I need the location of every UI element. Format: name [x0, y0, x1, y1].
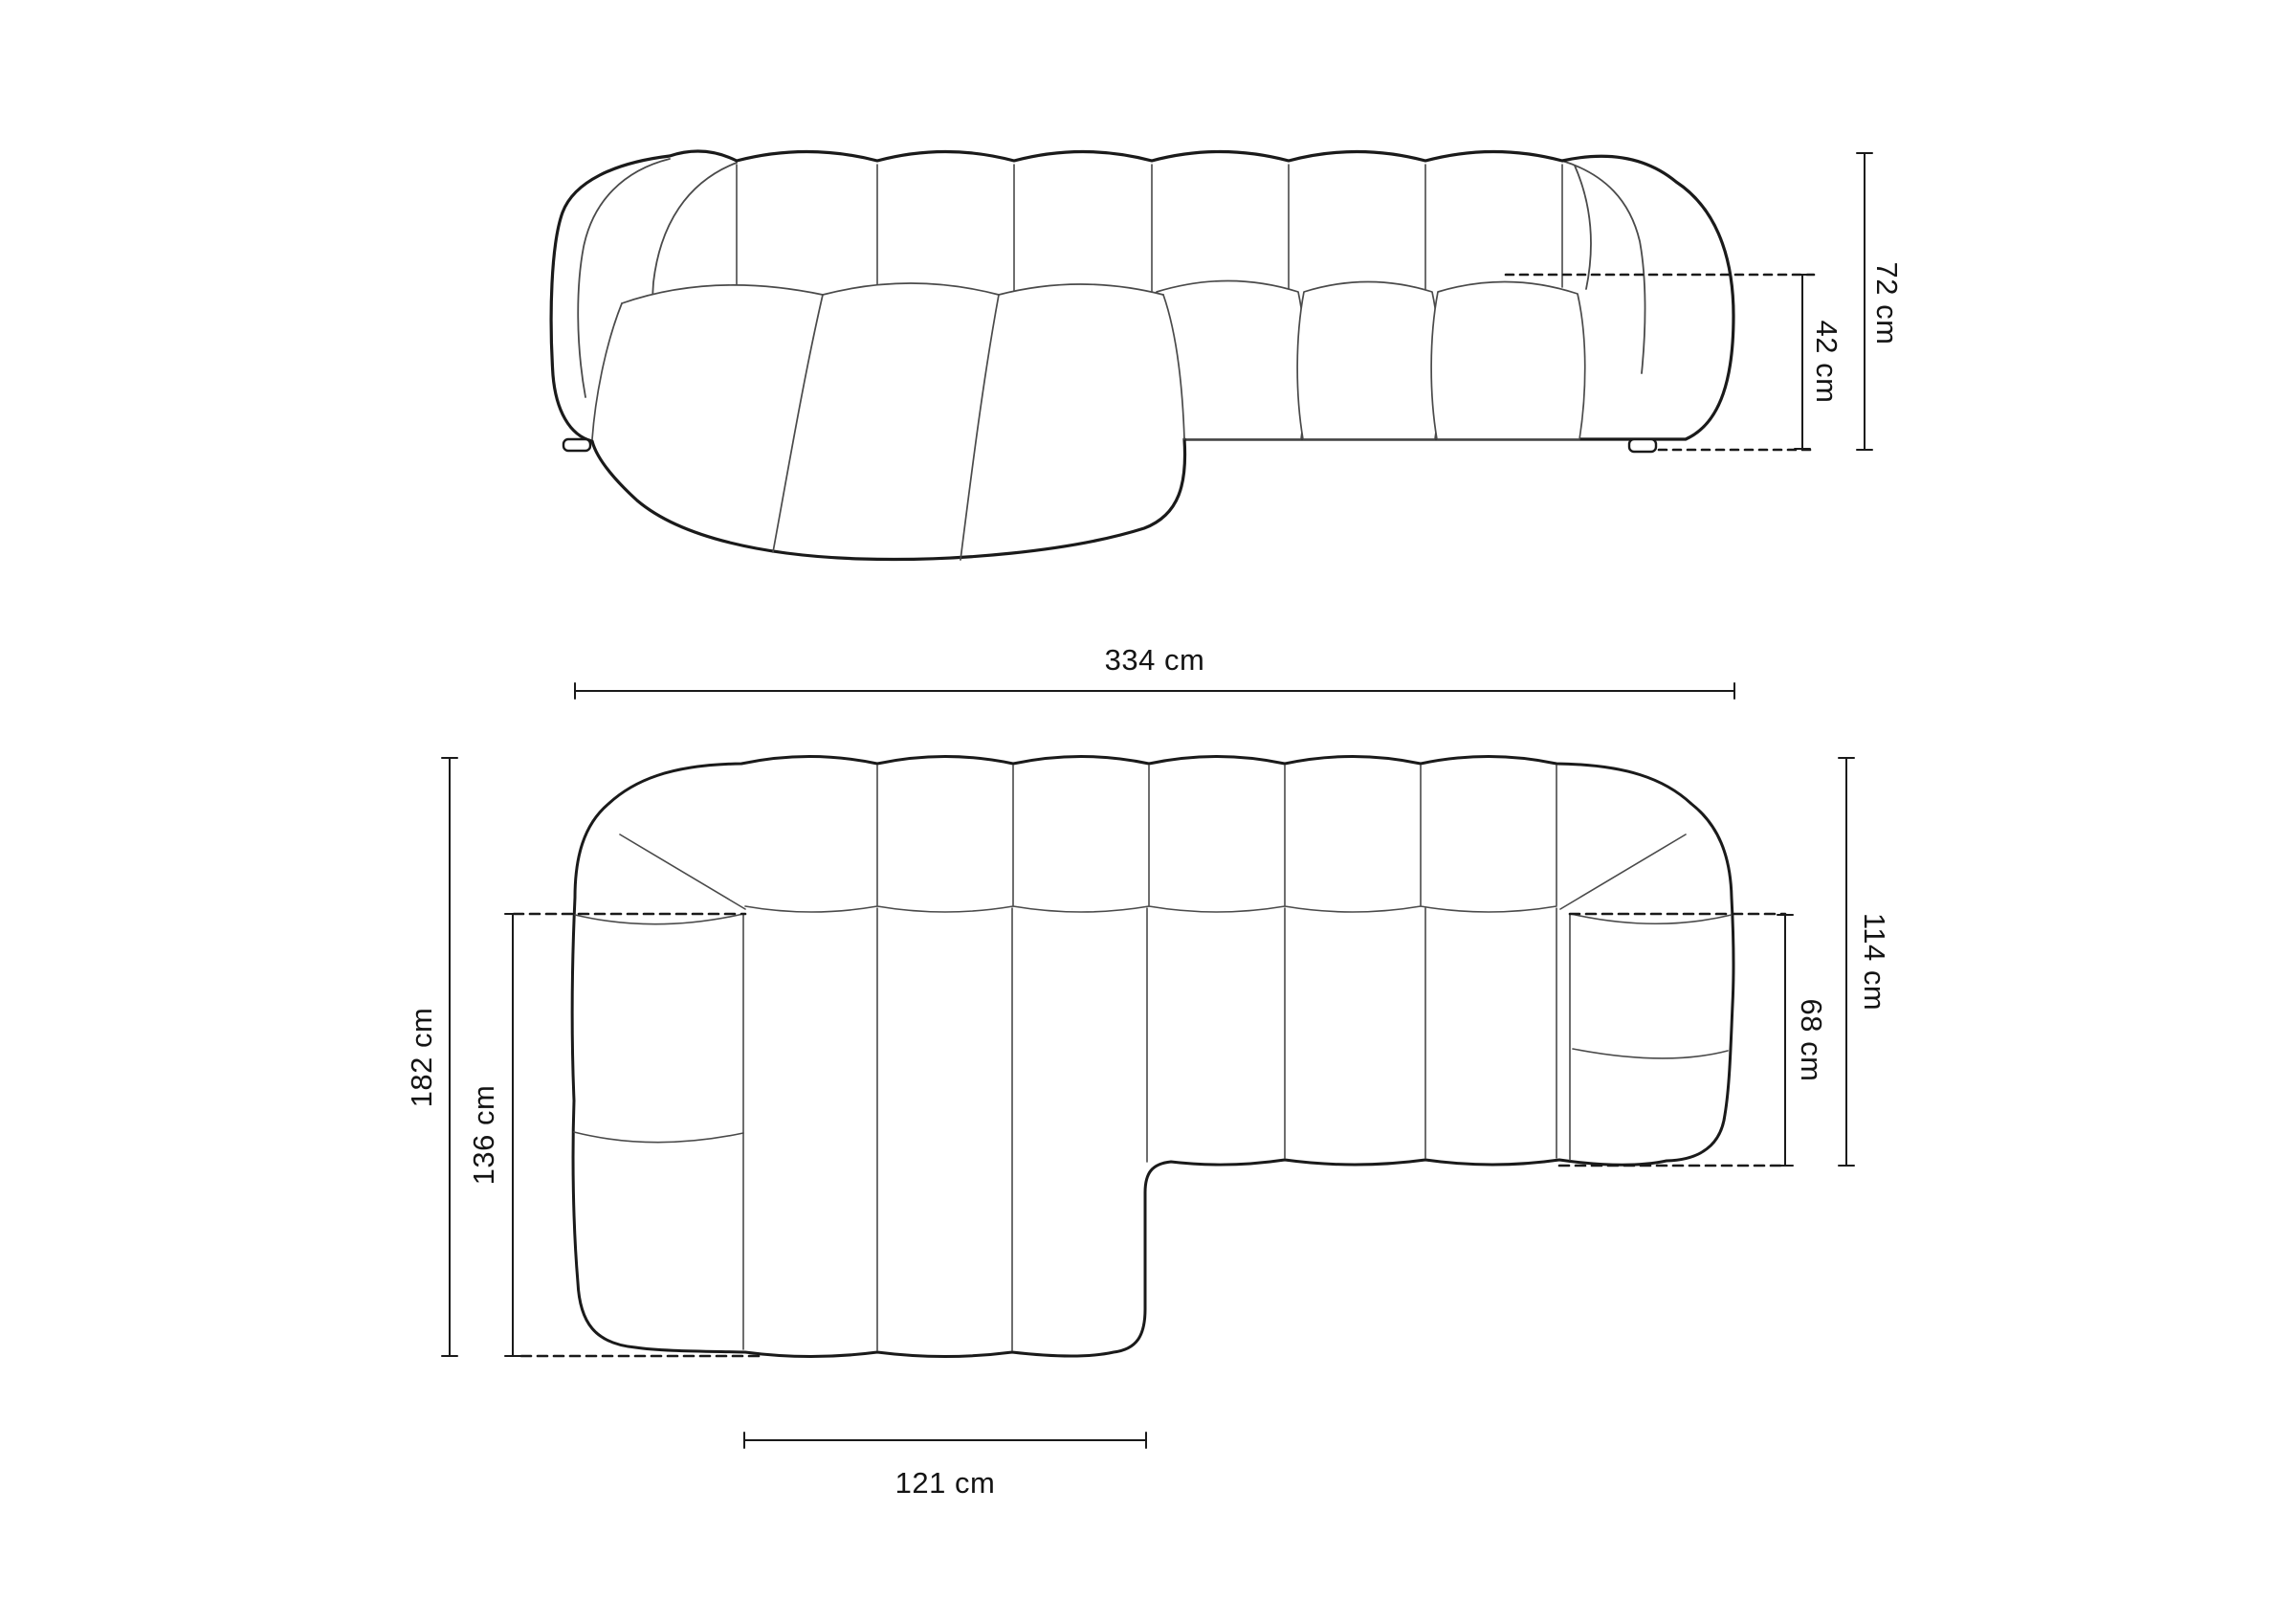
dim-label-total-height: 72 cm [1869, 262, 1904, 345]
dim-label-seat-height: 42 cm [1809, 321, 1843, 404]
dim-label-right-depth: 114 cm [1857, 913, 1891, 1011]
sofa-dimension-diagram: 72 cm 42 cm 334 cm 182 cm 136 cm 121 cm … [0, 0, 2296, 1623]
front-back-cushion-seams [737, 165, 1562, 297]
dim-label-chaise-depth: 136 cm [467, 1085, 501, 1186]
top-view-drawing [442, 683, 1854, 1448]
dim-label-chaise-width: 121 cm [895, 1466, 996, 1501]
front-view-drawing [551, 151, 1872, 560]
diagram-linework [0, 0, 2296, 1623]
front-dimension-lines [1795, 153, 1872, 450]
dim-label-total-width: 334 cm [1105, 643, 1205, 678]
dim-label-total-depth: 182 cm [405, 1008, 439, 1108]
front-chaise [592, 283, 1185, 560]
top-sofa-silhouette [572, 757, 1733, 1357]
dim-label-seat-depth: 68 cm [1794, 999, 1828, 1082]
front-seat-cushions [1150, 281, 1585, 440]
